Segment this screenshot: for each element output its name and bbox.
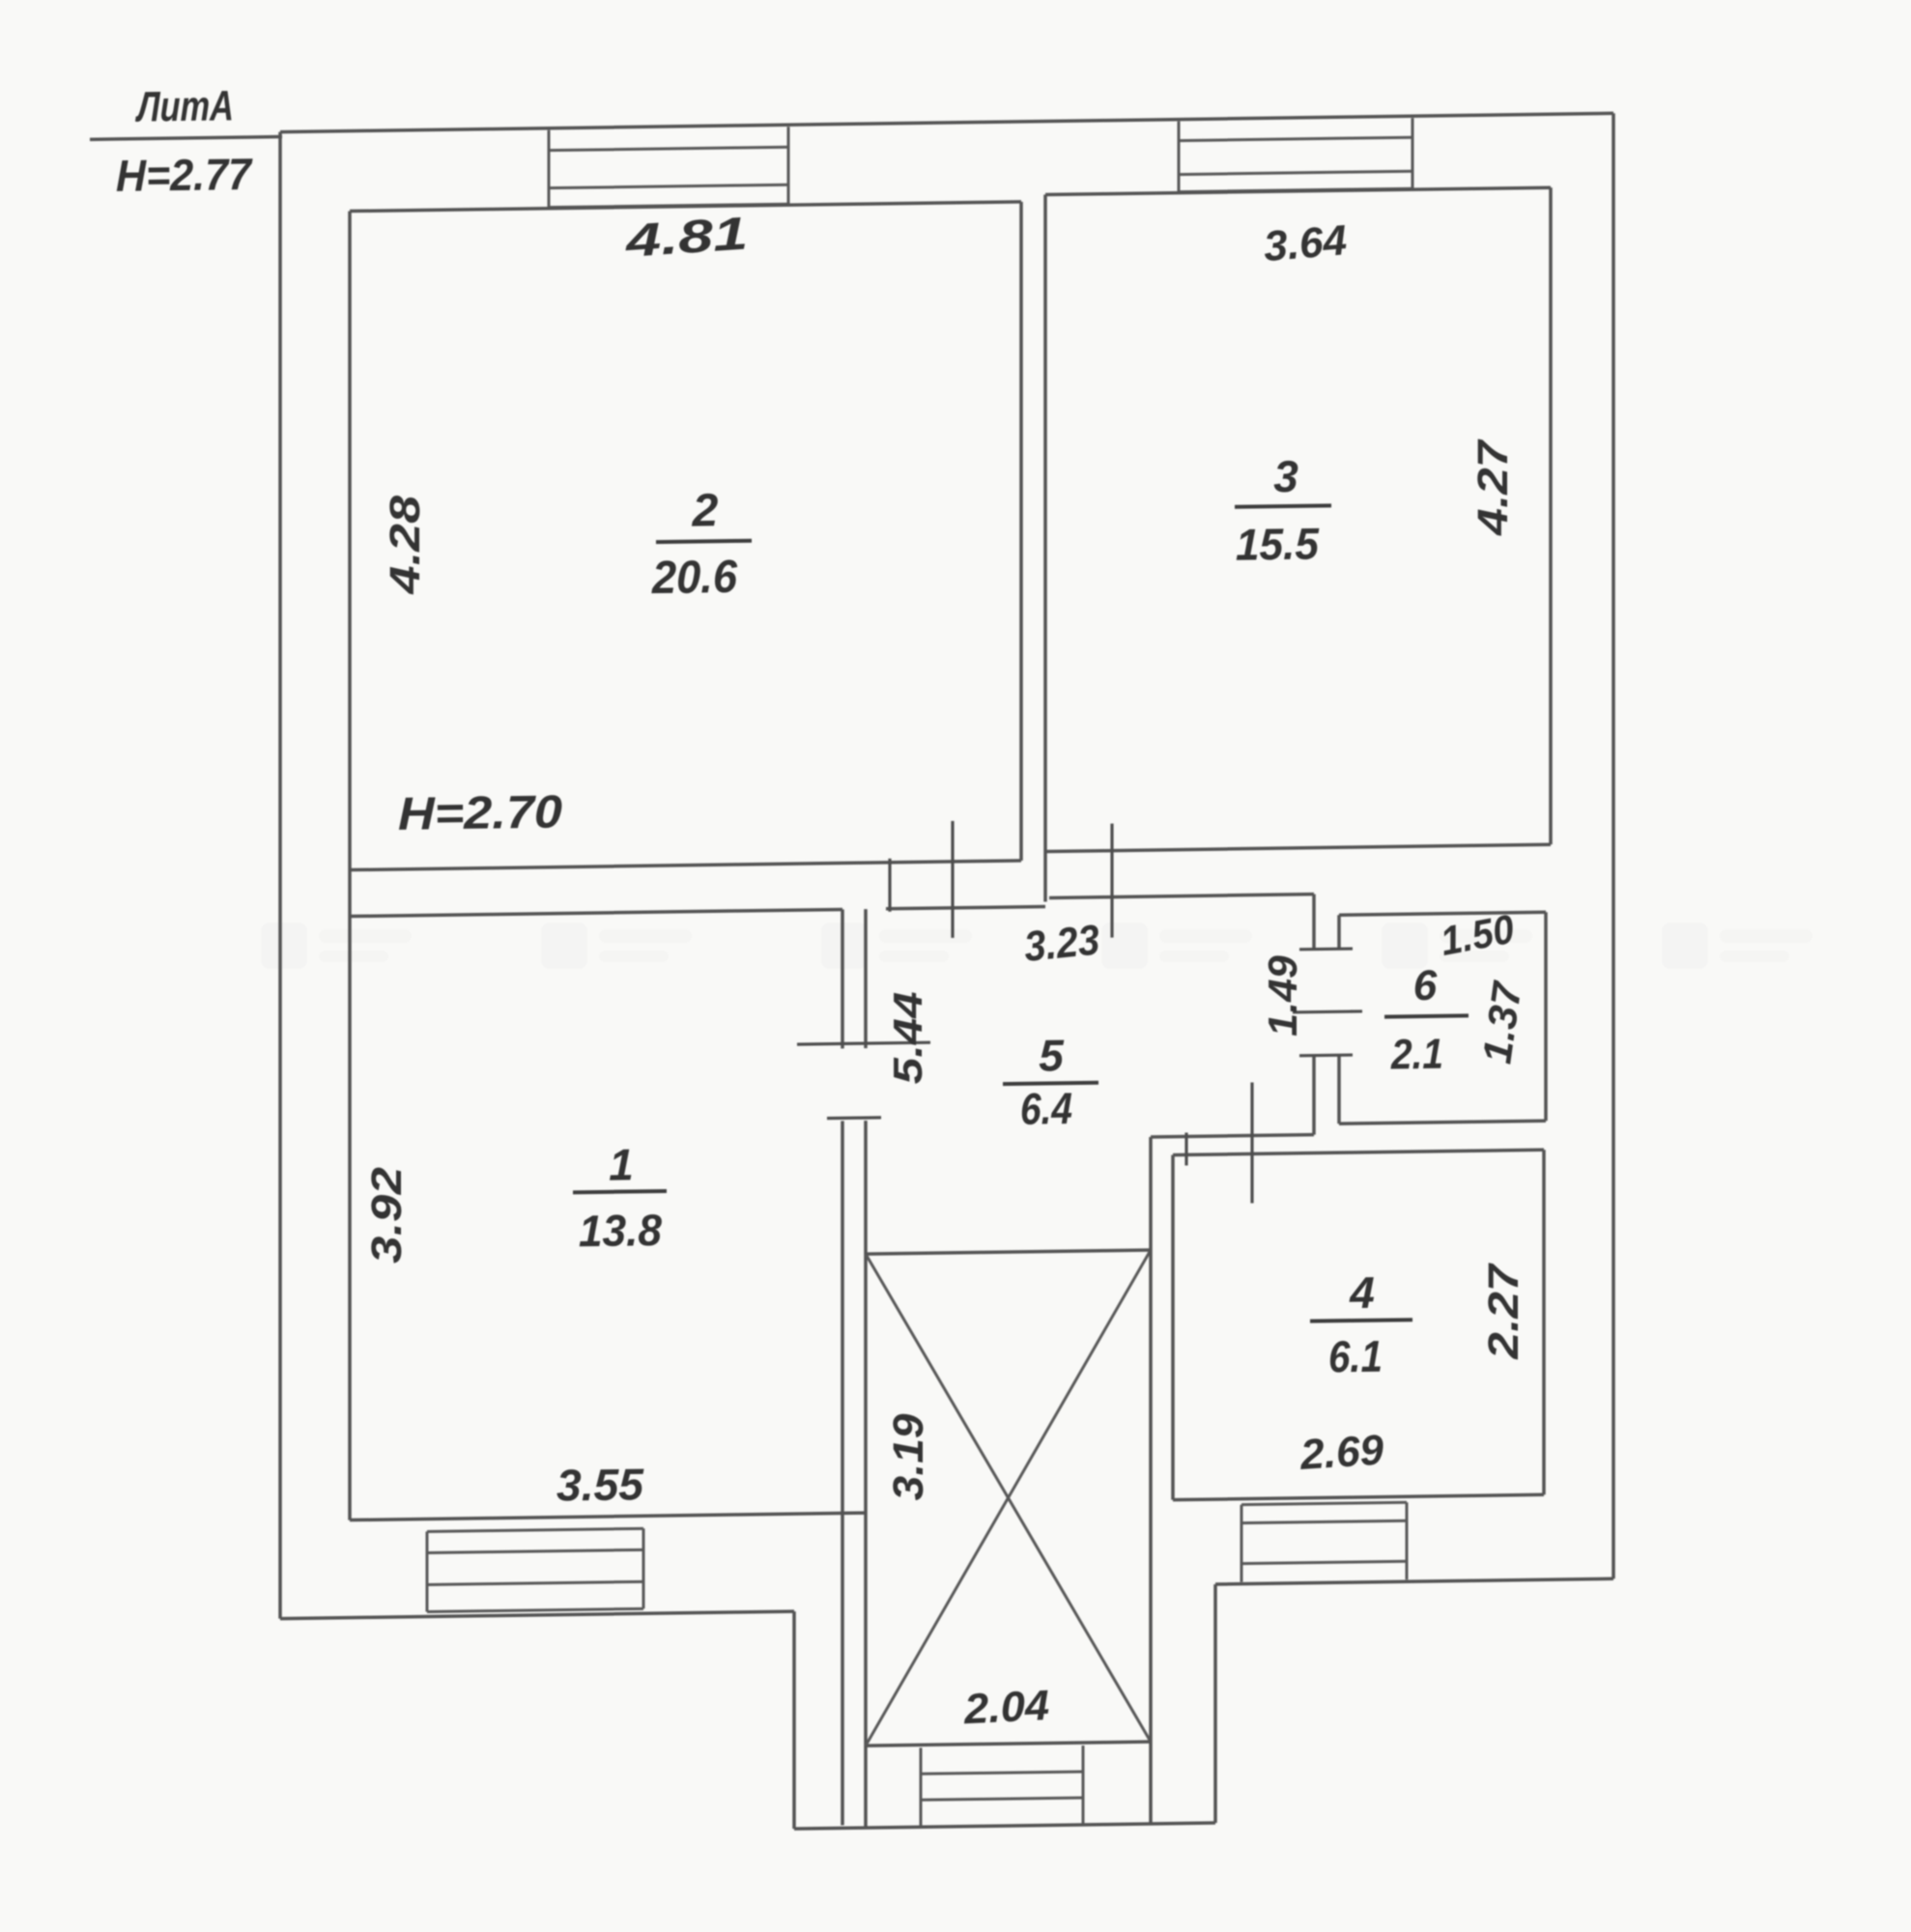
svg-text:Н=2.70: Н=2.70 <box>398 786 562 839</box>
svg-text:15.5: 15.5 <box>1236 519 1320 570</box>
svg-text:5: 5 <box>1039 1030 1065 1080</box>
svg-text:4: 4 <box>1349 1267 1375 1318</box>
svg-text:2: 2 <box>692 485 719 536</box>
svg-text:20.6: 20.6 <box>651 552 737 604</box>
svg-text:4.28: 4.28 <box>382 495 429 596</box>
svg-text:6.1: 6.1 <box>1328 1331 1383 1382</box>
svg-text:2.1: 2.1 <box>1390 1031 1443 1079</box>
svg-text:5.44: 5.44 <box>885 991 930 1085</box>
svg-text:ЛитА: ЛитА <box>135 82 234 130</box>
svg-text:3.64: 3.64 <box>1262 216 1348 270</box>
svg-text:3.55: 3.55 <box>556 1459 644 1510</box>
svg-text:3.92: 3.92 <box>363 1166 411 1264</box>
svg-text:4.81: 4.81 <box>623 209 749 268</box>
svg-text:2.69: 2.69 <box>1298 1426 1385 1479</box>
svg-text:3.23: 3.23 <box>1022 916 1101 971</box>
svg-text:2.04: 2.04 <box>962 1682 1050 1733</box>
svg-text:13.8: 13.8 <box>579 1205 662 1256</box>
svg-text:3.19: 3.19 <box>885 1413 932 1501</box>
svg-text:3: 3 <box>1273 451 1298 501</box>
svg-text:4.27: 4.27 <box>1469 438 1517 537</box>
svg-text:2.27: 2.27 <box>1480 1262 1527 1361</box>
svg-text:1.49: 1.49 <box>1260 954 1305 1037</box>
svg-text:Н=2.77: Н=2.77 <box>116 149 253 201</box>
svg-text:1: 1 <box>609 1139 634 1189</box>
svg-text:6: 6 <box>1413 962 1438 1009</box>
svg-text:6.4: 6.4 <box>1020 1083 1072 1134</box>
